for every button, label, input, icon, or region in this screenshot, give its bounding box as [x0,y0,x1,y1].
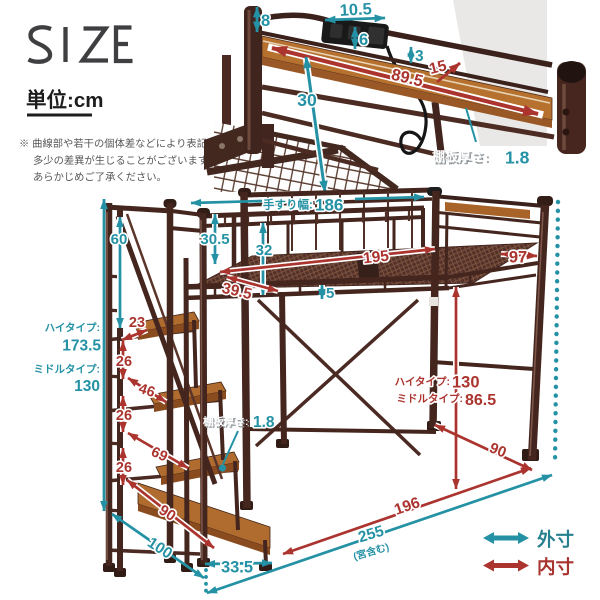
svg-text:10.5: 10.5 [339,0,372,20]
svg-text:1.8: 1.8 [253,414,275,431]
svg-text:26: 26 [116,408,132,424]
svg-text:30: 30 [297,90,317,110]
svg-text:1.8: 1.8 [505,148,530,168]
svg-text:ハイタイプ:: ハイタイプ: [395,375,450,388]
svg-text:130: 130 [452,374,480,392]
svg-text:30.5: 30.5 [200,231,229,248]
svg-text:多少の差異が生じることがございます。: 多少の差異が生じることがございます。 [33,154,217,167]
svg-text:26: 26 [116,460,132,476]
svg-text:ミドルタイプ:: ミドルタイプ: [34,363,101,376]
svg-text:8: 8 [261,12,270,30]
svg-text:6: 6 [359,31,368,49]
svg-text:23: 23 [129,315,145,331]
svg-text:26: 26 [116,354,132,370]
svg-text:あらかじめご了承ください。: あらかじめご了承ください。 [33,171,167,184]
svg-text:196: 196 [392,494,422,519]
svg-text:外寸: 外寸 [537,529,574,550]
svg-text:内寸: 内寸 [537,557,574,578]
svg-text:棚板厚さ:: 棚板厚さ: [203,415,249,428]
svg-text:手すり幅:: 手すり幅: [263,198,313,212]
svg-text:173.5: 173.5 [62,338,101,355]
svg-text:3: 3 [415,48,424,65]
svg-text:32: 32 [256,242,273,259]
svg-text:ミドルタイプ:: ミドルタイプ: [397,392,464,405]
svg-text:60: 60 [111,231,128,248]
svg-text:棚板厚さ:: 棚板厚さ: [432,149,488,164]
svg-text:(宮含む): (宮含む) [352,540,391,563]
svg-text:186: 186 [315,196,343,215]
svg-text:ハイタイプ:: ハイタイプ: [45,321,100,334]
svg-text:97: 97 [509,249,527,267]
svg-text:86.5: 86.5 [465,392,496,409]
svg-text:5: 5 [326,285,334,302]
svg-text:195: 195 [362,248,390,268]
svg-text:130: 130 [74,378,100,395]
svg-text:33.5: 33.5 [221,559,253,577]
svg-text:※ 曲線部や若干の個体差などにより表記と: ※ 曲線部や若干の個体差などにより表記と [19,137,217,150]
svg-text:単位:cm: 単位:cm [26,88,103,112]
